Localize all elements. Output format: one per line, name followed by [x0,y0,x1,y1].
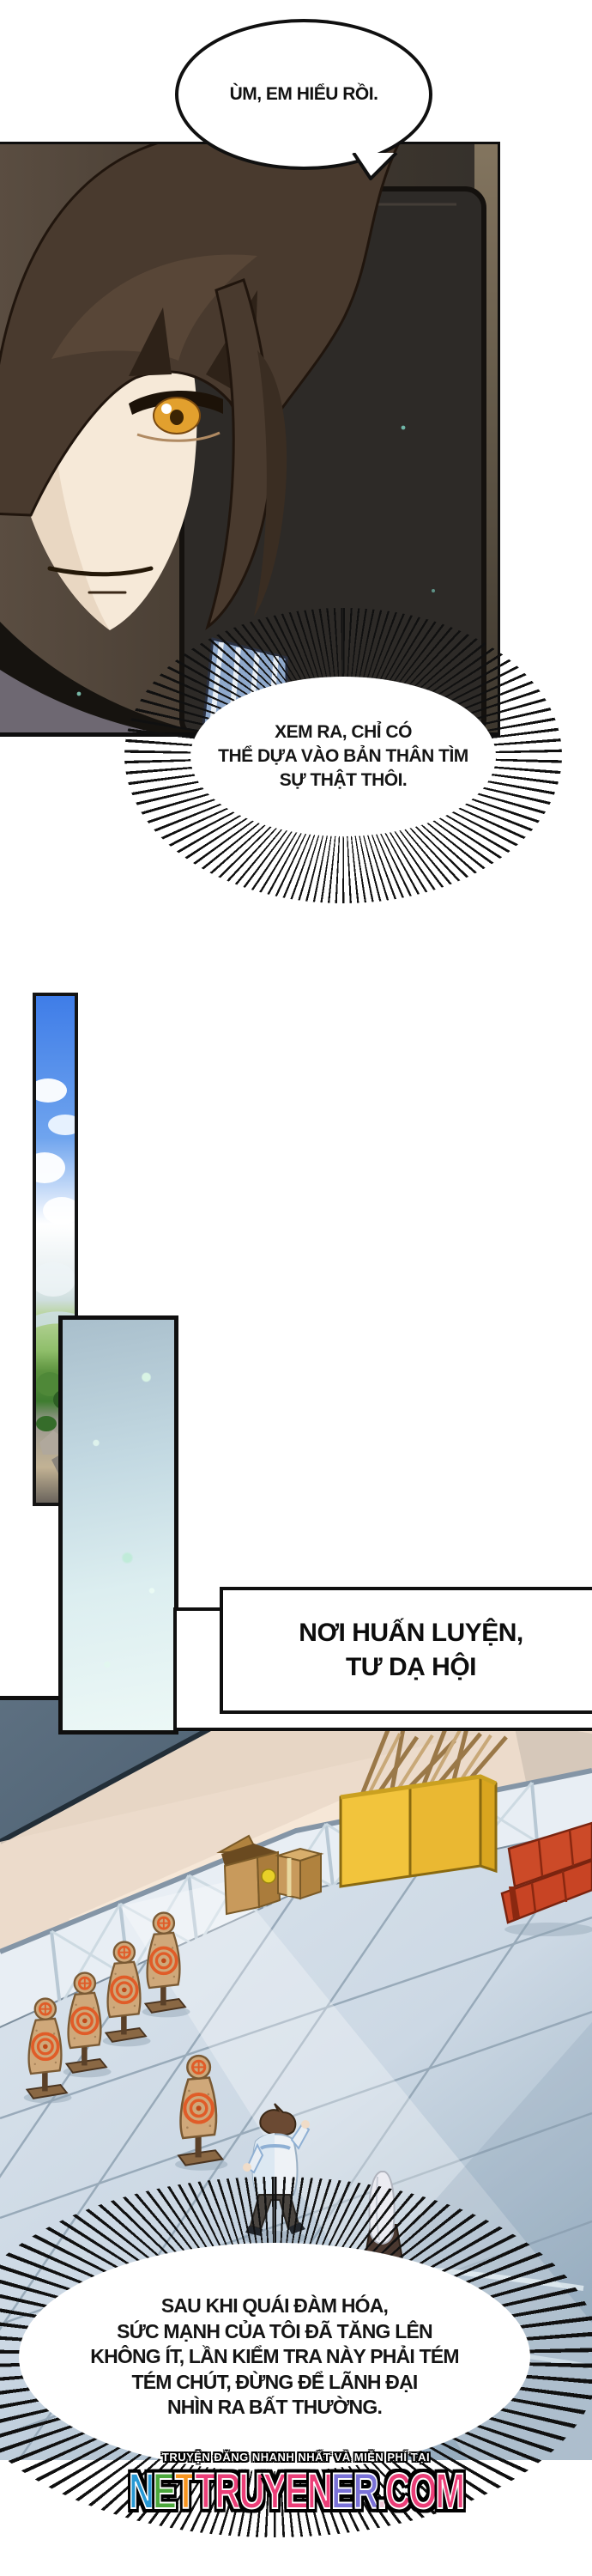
transition-panel [58,1315,178,1735]
logo-letter: E [153,2464,175,2519]
footer-banner: TRUYỆN ĐĂNG NHANH NHẤT VÀ MIỄN PHÍ TẠI N… [0,2444,592,2555]
logo-letter: N [307,2464,331,2519]
speech-bubble-tail [350,153,402,184]
footer-tagline: TRUYỆN ĐĂNG NHANH NHẤT VÀ MIỄN PHÍ TẠI [162,2451,430,2464]
logo-letter: C [385,2464,409,2519]
scene-caption-text: NƠI HUẤN LUYỆN, TƯ DẠ HỘI [299,1616,523,1686]
logo-letter: E [331,2464,353,2519]
webtoon-page: { "bubbles": { "top": { "text": "ÙM, EM … [0,0,592,2576]
thought-text-bottom: SAU KHI QUÁI ĐÀM HÓA, SỨC MẠNH CỦA TÔI Đ… [90,2293,458,2420]
logo-letter: N [129,2464,153,2519]
logo-letter: O [409,2464,435,2519]
scene-caption: NƠI HUẤN LUYỆN, TƯ DẠ HỘI [220,1587,592,1714]
site-logo[interactable]: NETTRUYENER.COM [83,2465,510,2531]
logo-letter: Y [263,2464,285,2519]
logo-letter: R [353,2464,378,2519]
logo-letter: T [175,2464,195,2519]
logo-letter: E [285,2464,307,2519]
speech-bubble-top: ÙM, EM HIỂU RỒI. [175,19,432,170]
thought-bubble-bottom: SAU KHI QUÁI ĐÀM HÓA, SỨC MẠNH CỦA TÔI Đ… [19,2243,530,2471]
speech-text-top: ÙM, EM HIỂU RỒI. [230,83,378,106]
logo-letter: M [435,2464,463,2519]
logo-letter: U [239,2464,263,2519]
thought-text-mid: XEM RA, CHỈ CÓ THỂ DỰA VÀO BẢN THÂN TÌM … [218,720,468,792]
logo-letter: . [378,2464,385,2519]
logo-letter: T [195,2464,214,2519]
logo-letter: R [214,2464,239,2519]
thought-bubble-mid: XEM RA, CHỈ CÓ THỂ DỰA VÀO BẢN THÂN TÌM … [190,677,496,836]
